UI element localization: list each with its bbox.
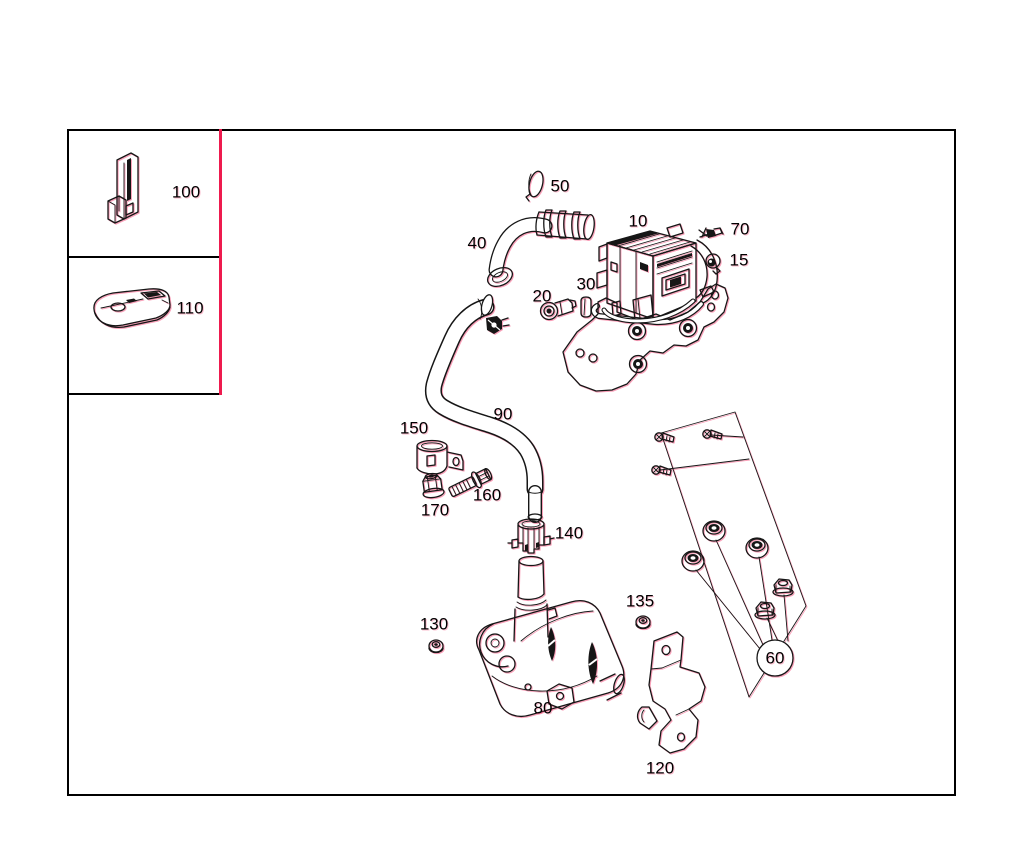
part-label-170: 170 xyxy=(421,502,449,519)
part-10-drawing xyxy=(563,224,728,391)
part-label-40: 40 xyxy=(468,235,487,252)
screw-icon xyxy=(655,433,674,442)
part-label-50: 50 xyxy=(551,178,570,195)
part-label-80: 80 xyxy=(534,700,553,717)
part-140-drawing xyxy=(508,519,554,553)
grommet-icon xyxy=(703,521,725,541)
part-label-90: 90 xyxy=(494,406,513,423)
grommet-icon xyxy=(682,551,704,571)
part-label-140: 140 xyxy=(555,525,583,542)
part-70-drawing xyxy=(699,228,723,238)
part-label-130: 130 xyxy=(420,616,448,633)
part-label-160: 160 xyxy=(473,487,501,504)
screw-icon xyxy=(703,430,722,439)
part-135-drawing xyxy=(636,616,650,629)
part-100-drawing xyxy=(108,153,138,223)
part-170-drawing xyxy=(420,472,444,499)
clip-nut-icon xyxy=(773,579,793,596)
diagram-stage: 100 110 50 40 10 70 15 20 30 90 150 160 … xyxy=(0,0,1024,846)
part-label-30: 30 xyxy=(577,276,596,293)
part-label-120: 120 xyxy=(646,760,674,777)
part-50-drawing xyxy=(526,170,545,201)
clip-nut-icon xyxy=(755,602,775,619)
part-label-110: 110 xyxy=(176,300,203,317)
part-label-20: 20 xyxy=(533,288,552,305)
part-150-drawing xyxy=(417,441,463,475)
part-label-60: 60 xyxy=(766,650,785,667)
part-120-drawing xyxy=(638,632,705,753)
part-label-150: 150 xyxy=(400,420,428,437)
part-label-10: 10 xyxy=(629,213,648,230)
grommet-icon xyxy=(746,538,768,558)
part-label-135: 135 xyxy=(626,593,654,610)
part-110-drawing xyxy=(94,289,170,328)
part-label-15: 15 xyxy=(730,252,749,269)
part-30-drawing xyxy=(581,297,591,317)
part-80-drawing xyxy=(477,557,627,717)
part-label-70: 70 xyxy=(731,221,750,238)
part-label-100: 100 xyxy=(172,184,200,201)
part-130-drawing xyxy=(429,640,443,653)
screw-icon xyxy=(652,466,671,475)
